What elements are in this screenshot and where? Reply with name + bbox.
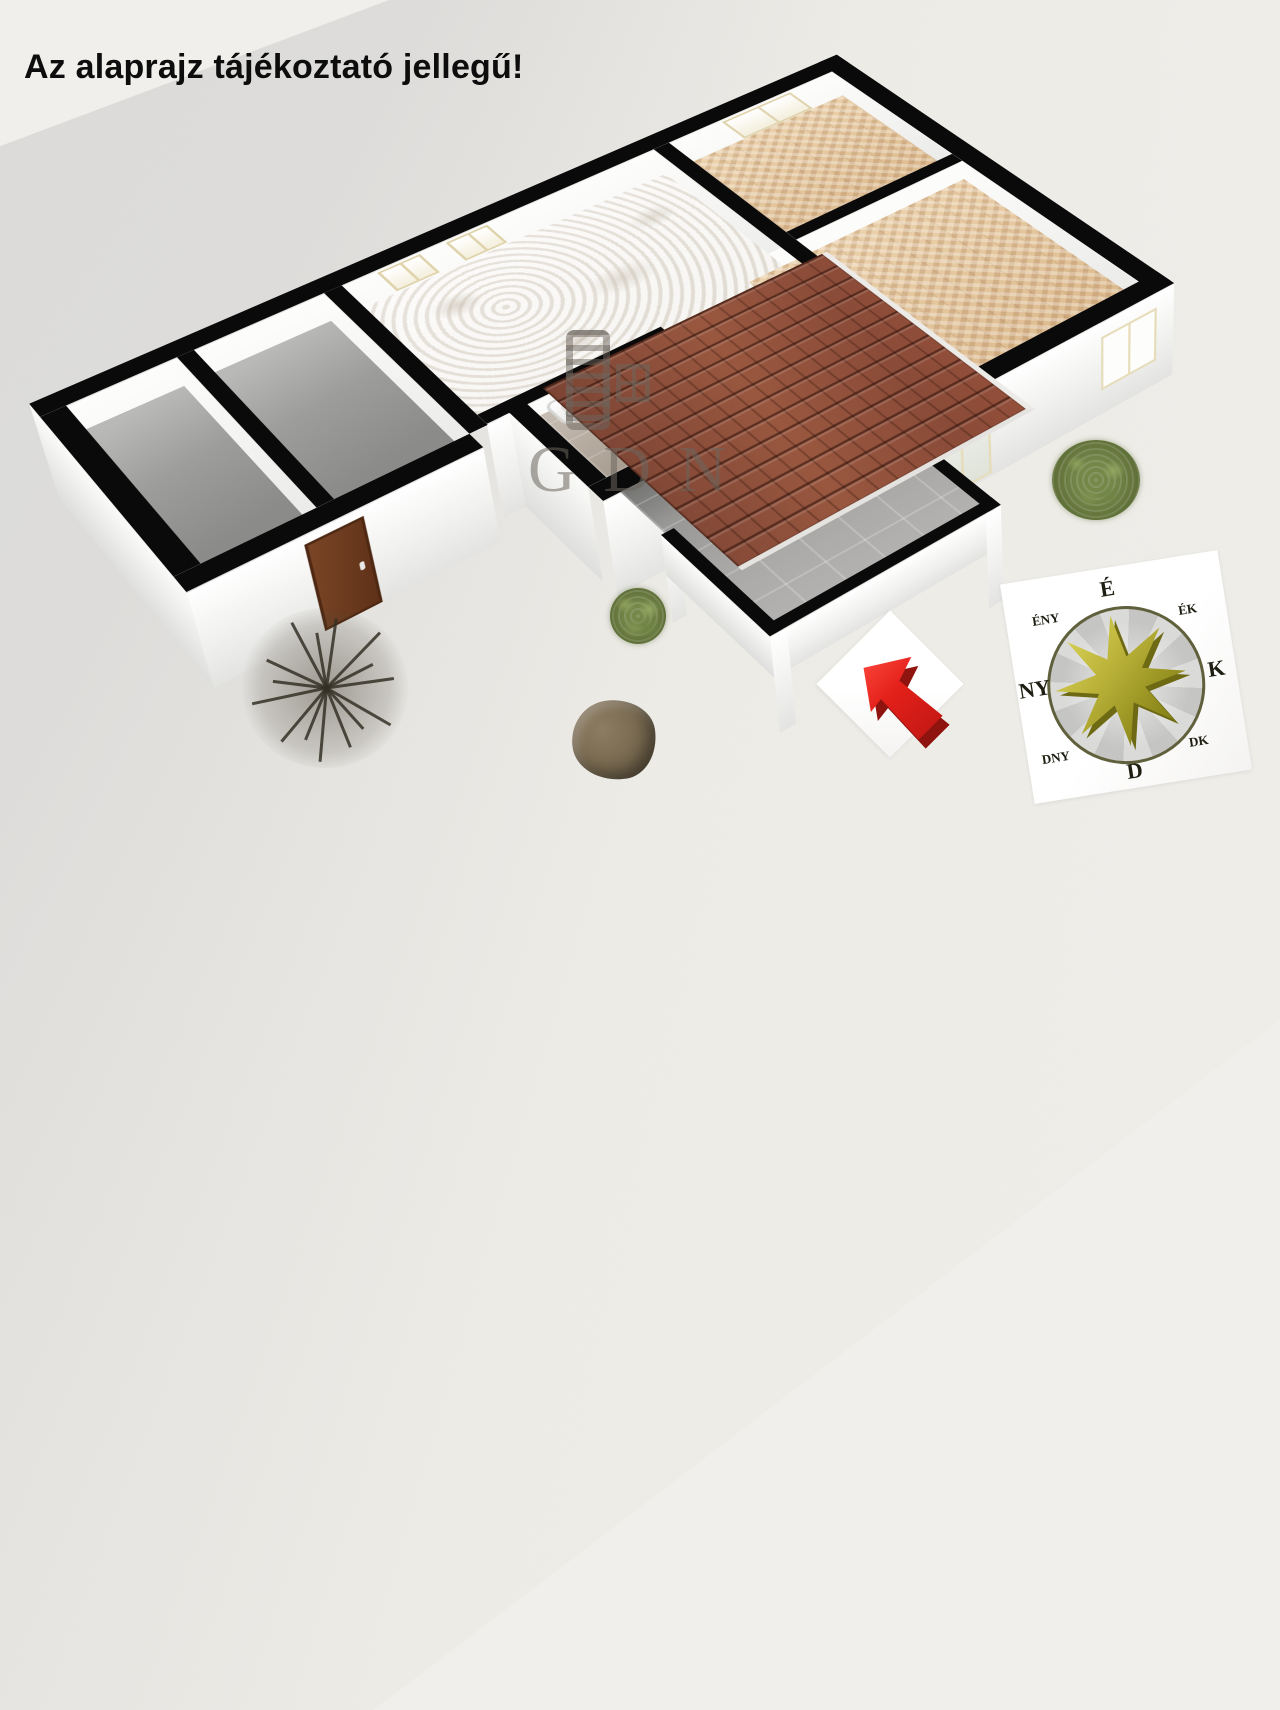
compass-card: É ÉK K DK D DNY NY ÉNY — [1000, 550, 1252, 804]
watermark-text: GDN — [528, 432, 754, 508]
gdn-watermark: GDN — [540, 330, 754, 508]
page-title: Az alaprajz tájékoztató jellegű! — [24, 48, 524, 87]
compass-label-se: DK — [1188, 732, 1210, 751]
bare-tree-icon — [240, 608, 410, 768]
green-tree-icon — [1052, 440, 1140, 520]
red-arrow-icon — [858, 655, 950, 747]
compass-label-sw: DNY — [1041, 748, 1071, 768]
gdn-logo-icon — [540, 330, 658, 430]
door-handle — [359, 561, 366, 571]
compass-label-ne: ÉK — [1177, 600, 1198, 619]
front-right-window — [1101, 307, 1157, 390]
compass-label-nw: ÉNY — [1031, 610, 1061, 630]
green-bush-icon — [610, 588, 666, 644]
compass-label-e: K — [1206, 655, 1227, 683]
compass-label-w: NY — [1017, 674, 1052, 705]
compass-label-n: É — [1098, 575, 1117, 603]
